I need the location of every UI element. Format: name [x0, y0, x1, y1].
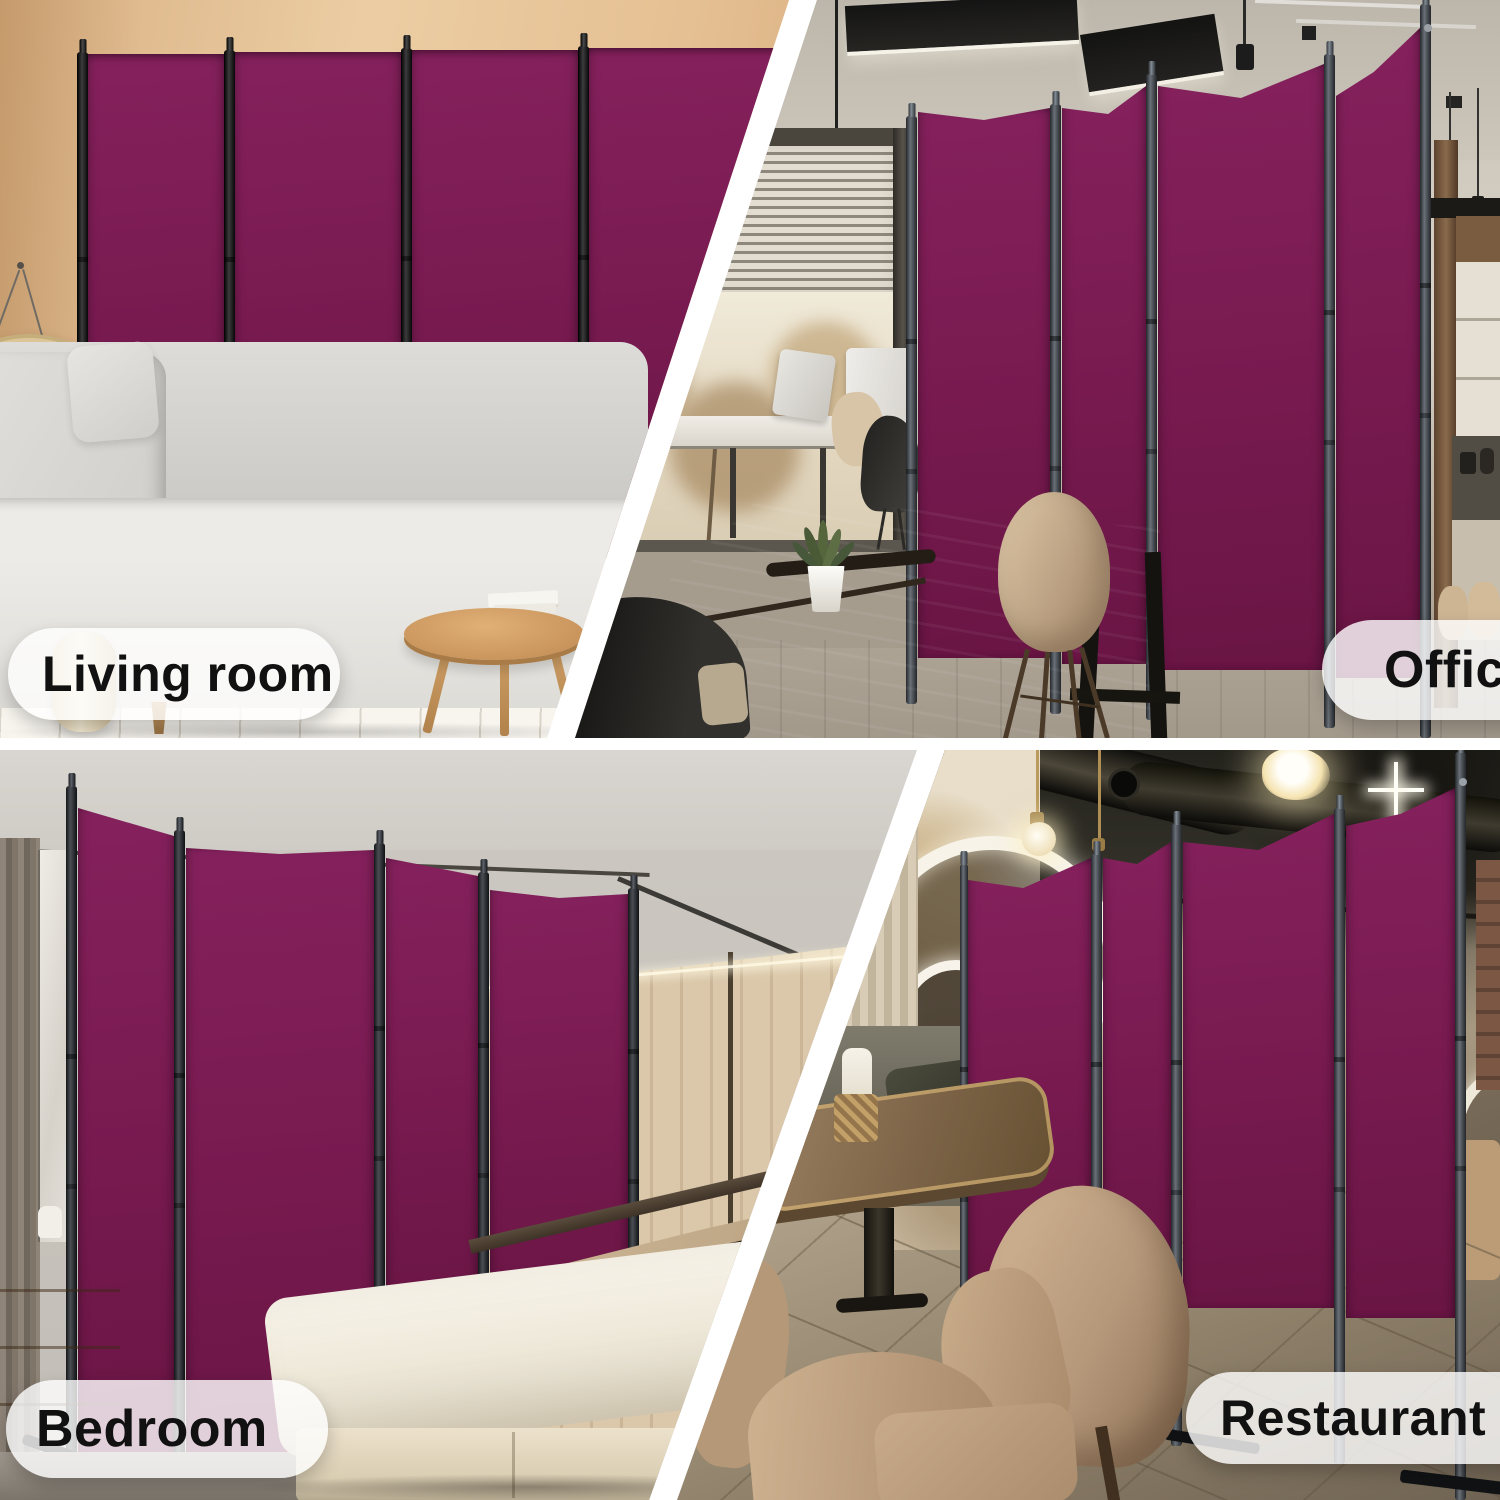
ceiling-speaker: [1236, 44, 1254, 70]
foreground-chair-pad: [697, 662, 749, 726]
divider-hinge-knob: [1459, 778, 1467, 786]
divider-panel: [1183, 810, 1334, 1308]
potted-plant: [796, 520, 856, 616]
shelf-object: [1460, 452, 1476, 474]
label-pill-restaurant: Restaurant: [1186, 1372, 1500, 1464]
computer-monitor: [772, 348, 837, 421]
pendant-stem: [1036, 750, 1039, 816]
divider-panel: [1336, 28, 1420, 678]
label-pill-office: Office: [1322, 620, 1500, 720]
back-wood-band: [1456, 216, 1500, 264]
table-pedestal: [864, 1208, 894, 1304]
duct-vent: [1108, 768, 1140, 800]
pendant-bulb: [1262, 748, 1330, 800]
divider-pole: [374, 843, 385, 1325]
paneling-seam: [728, 952, 733, 1242]
back-cabinets: [1456, 262, 1500, 438]
product-collage: 12: [0, 0, 1500, 1500]
shell-chair: [998, 492, 1110, 652]
divider-panel: [1346, 788, 1455, 1318]
label-text: Bedroom: [36, 1399, 268, 1459]
divider-pole: [174, 830, 185, 1470]
pendant-bulb: [1022, 822, 1056, 856]
plant-pot: [805, 566, 847, 612]
coffee-table-leg: [550, 650, 579, 732]
ceiling-speaker: [1302, 26, 1316, 40]
coffee-table-leg: [500, 656, 509, 736]
sofa-pillow: [66, 340, 160, 443]
coffee-table-leg: [422, 652, 451, 734]
pendant-cord: [1477, 88, 1479, 200]
label-pill-living-room: Living room: [8, 628, 340, 720]
vase: [38, 1206, 62, 1238]
divider-panel: [1158, 62, 1324, 670]
pendant-cord: [1243, 0, 1246, 46]
divider-pole: [478, 872, 489, 1322]
candle-cup: [834, 1094, 878, 1142]
divider-pole: [1334, 808, 1345, 1464]
brick-wall: [1476, 860, 1500, 1090]
coffee-table-top: [404, 608, 584, 660]
label-text: Restaurant: [1220, 1389, 1486, 1447]
pendant-stem: [1098, 750, 1101, 842]
divider-hinge-knob: [1424, 24, 1432, 32]
light-flare: [1394, 762, 1398, 818]
shelf-object: [1480, 448, 1494, 474]
coffee-table: [400, 588, 600, 740]
armchair-cushion: [873, 1401, 1079, 1500]
label-text: Living room: [42, 645, 334, 703]
label-pill-bedroom: Bedroom: [6, 1380, 328, 1478]
divider-pole: [1324, 54, 1335, 728]
divider-panel: [386, 854, 478, 1330]
back-shelf: [1452, 436, 1500, 522]
label-text: Office: [1384, 640, 1500, 700]
